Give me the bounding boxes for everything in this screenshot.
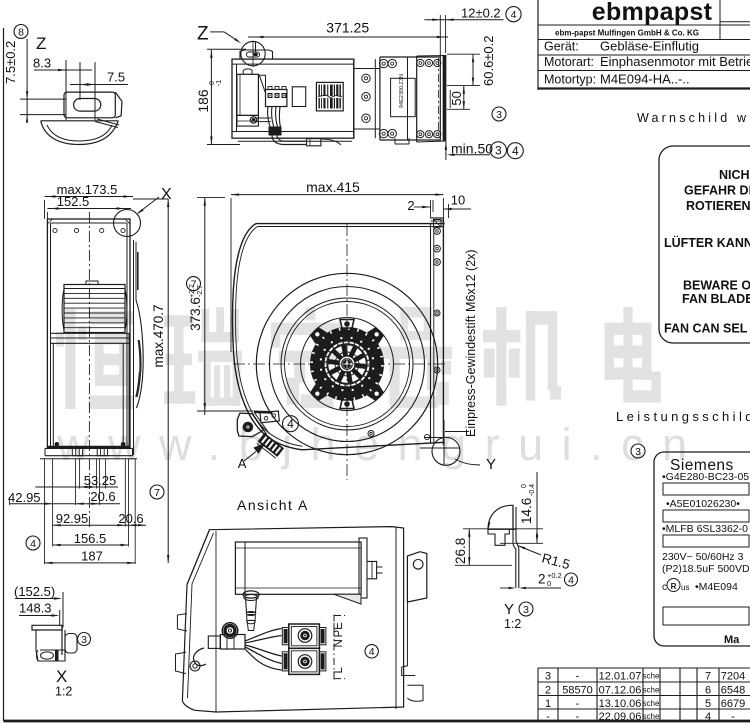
svg-text:-1: -1 (216, 80, 223, 86)
svg-text:sche: sche (643, 686, 660, 695)
svg-text:5: 5 (705, 698, 711, 710)
svg-text:M4E094-HA..-..: M4E094-HA..-.. (600, 72, 690, 87)
svg-text:6679: 6679 (721, 698, 745, 710)
svg-text:1:2: 1:2 (55, 685, 72, 699)
svg-text:7.5±0.2: 7.5±0.2 (3, 41, 18, 84)
svg-text:•A5E01026230•: •A5E01026230• (666, 498, 740, 510)
svg-text:min.50: min.50 (451, 140, 493, 156)
svg-text:187: 187 (81, 549, 103, 564)
svg-text:ebmpapst: ebmpapst (592, 0, 713, 26)
svg-text:X: X (161, 186, 172, 203)
svg-text:3: 3 (545, 671, 551, 683)
svg-text:A: A (238, 456, 247, 471)
svg-text:max.415: max.415 (306, 179, 360, 195)
svg-text:Gerät:: Gerät: (544, 40, 579, 54)
svg-text:22.09.06: 22.09.06 (599, 711, 642, 723)
svg-text:-: - (576, 711, 580, 723)
svg-text:-: - (731, 711, 735, 723)
svg-text:8.3: 8.3 (33, 56, 51, 71)
svg-text:X: X (56, 667, 67, 686)
svg-text:sche: sche (643, 672, 660, 681)
svg-text:Ansicht A: Ansicht A (237, 497, 309, 513)
svg-text:1: 1 (545, 698, 551, 710)
svg-text:LÜFTER KANN: LÜFTER KANN (664, 235, 750, 250)
svg-text:0: 0 (209, 81, 216, 85)
svg-text:4: 4 (369, 646, 375, 658)
svg-text:156.5: 156.5 (74, 531, 107, 546)
svg-text:148.3: 148.3 (19, 601, 52, 616)
svg-text:R: R (671, 582, 677, 591)
svg-text:Z: Z (197, 24, 209, 45)
svg-text:-0.4: -0.4 (529, 484, 536, 496)
svg-text:NICH: NICH (719, 168, 750, 182)
svg-text:FAN BLADES: FAN BLADES (682, 292, 750, 306)
svg-text:•G4E280-BC23-05: •G4E280-BC23-05 (662, 471, 749, 483)
svg-text:6548: 6548 (721, 685, 745, 697)
svg-text:2: 2 (538, 572, 546, 587)
svg-text:Motorart:: Motorart: (544, 55, 594, 69)
svg-text:max.470.7: max.470.7 (151, 304, 166, 367)
svg-text:7: 7 (154, 487, 160, 499)
svg-text:230V~ 50/60Hz 3: 230V~ 50/60Hz 3 (662, 551, 744, 563)
svg-text:7204: 7204 (721, 671, 745, 683)
svg-text:us: us (681, 583, 689, 592)
svg-text:-: - (576, 671, 580, 683)
svg-text:60.6±0.2: 60.6±0.2 (481, 35, 496, 86)
svg-text:Einpress-Gewindestift M6x12 (2: Einpress-Gewindestift M6x12 (2x) (464, 249, 478, 437)
svg-text:3: 3 (523, 604, 529, 616)
svg-text:sche: sche (643, 699, 660, 708)
svg-text:c: c (662, 582, 667, 593)
svg-text:L: L (333, 667, 345, 674)
svg-text:ebm-papst Mulfingen GmbH & Co.: ebm-papst Mulfingen GmbH & Co. KG (555, 29, 699, 38)
svg-text:-2.7: -2.7 (197, 285, 204, 297)
svg-text:4: 4 (512, 144, 519, 158)
svg-text:•MLFB 6SL3362-0: •MLFB 6SL3362-0 (662, 523, 748, 535)
svg-text:2: 2 (545, 685, 551, 697)
svg-text:-: - (576, 698, 580, 710)
svg-text:186: 186 (195, 89, 211, 113)
svg-text:N: N (333, 639, 345, 647)
svg-text:0: 0 (547, 579, 551, 588)
svg-text:4: 4 (30, 538, 36, 550)
svg-text:Einphasenmotor mit Betriebs: Einphasenmotor mit Betriebs (600, 54, 750, 69)
svg-text:PE: PE (333, 622, 345, 638)
svg-text:26.8: 26.8 (453, 538, 468, 564)
svg-text:371.25: 371.25 (326, 20, 369, 36)
svg-text:Ma: Ma (724, 634, 740, 646)
svg-text:12.01.07: 12.01.07 (599, 671, 642, 683)
svg-text:13.10.06: 13.10.06 (599, 698, 642, 710)
svg-text:+2.7: +2.7 (189, 284, 196, 298)
svg-text:07.12.06: 07.12.06 (599, 685, 642, 697)
svg-text:3: 3 (635, 446, 641, 458)
svg-text:7.5: 7.5 (107, 70, 125, 85)
svg-text:4: 4 (568, 574, 574, 586)
svg-text:7: 7 (705, 671, 711, 683)
svg-text:www.bjhengrui.cn: www.bjhengrui.cn (56, 419, 706, 470)
svg-text:Y: Y (486, 456, 496, 473)
svg-text:94E2300.Z3N: 94E2300.Z3N (399, 74, 405, 108)
svg-text:3: 3 (496, 109, 502, 121)
svg-text:1:2: 1:2 (504, 617, 521, 631)
svg-text:BEWARE OF: BEWARE OF (683, 279, 750, 293)
svg-text:4: 4 (287, 417, 294, 431)
svg-text:4: 4 (511, 9, 517, 21)
svg-text:4: 4 (705, 711, 711, 723)
svg-text:Z: Z (36, 34, 46, 53)
svg-text:GEFAHR DE: GEFAHR DE (684, 184, 750, 198)
svg-text:Gebläse-Einflutig: Gebläse-Einflutig (600, 39, 699, 54)
svg-text:6: 6 (705, 685, 711, 697)
svg-text:152.5: 152.5 (57, 194, 90, 209)
svg-text:Leistungsschild: Leistungsschild (616, 409, 750, 424)
svg-text:0: 0 (521, 484, 528, 488)
svg-text:8: 8 (18, 26, 24, 38)
svg-text:Warnschild w: Warnschild w (637, 111, 749, 125)
svg-text:50: 50 (449, 91, 464, 105)
svg-text:Y: Y (504, 601, 514, 618)
svg-text:FAN CAN SEL: FAN CAN SEL (664, 322, 748, 336)
svg-text:10: 10 (451, 193, 465, 208)
svg-text:92.95: 92.95 (56, 511, 89, 526)
svg-text:3: 3 (495, 143, 502, 157)
svg-text:sche: sche (643, 712, 660, 721)
svg-text:20.6: 20.6 (118, 511, 143, 526)
svg-text:3: 3 (81, 634, 87, 646)
svg-text:-: - (546, 711, 550, 723)
svg-text:(152.5): (152.5) (14, 584, 55, 599)
svg-text:ROTIEREND: ROTIEREND (686, 199, 750, 213)
svg-text:42.95: 42.95 (8, 490, 41, 505)
svg-text:•M4E094: •M4E094 (695, 581, 738, 593)
svg-text:53.25: 53.25 (84, 473, 117, 488)
svg-text:14.6: 14.6 (519, 498, 534, 524)
svg-text:Motortyp:: Motortyp: (544, 73, 596, 87)
svg-text:2: 2 (407, 198, 414, 213)
svg-text:58570: 58570 (562, 685, 593, 697)
svg-text:373.6: 373.6 (188, 297, 203, 331)
svg-text:12±0.2: 12±0.2 (461, 6, 501, 21)
svg-text:(P2)18.5uF 500VD: (P2)18.5uF 500VD (662, 563, 750, 575)
svg-text:20.6: 20.6 (90, 489, 115, 504)
